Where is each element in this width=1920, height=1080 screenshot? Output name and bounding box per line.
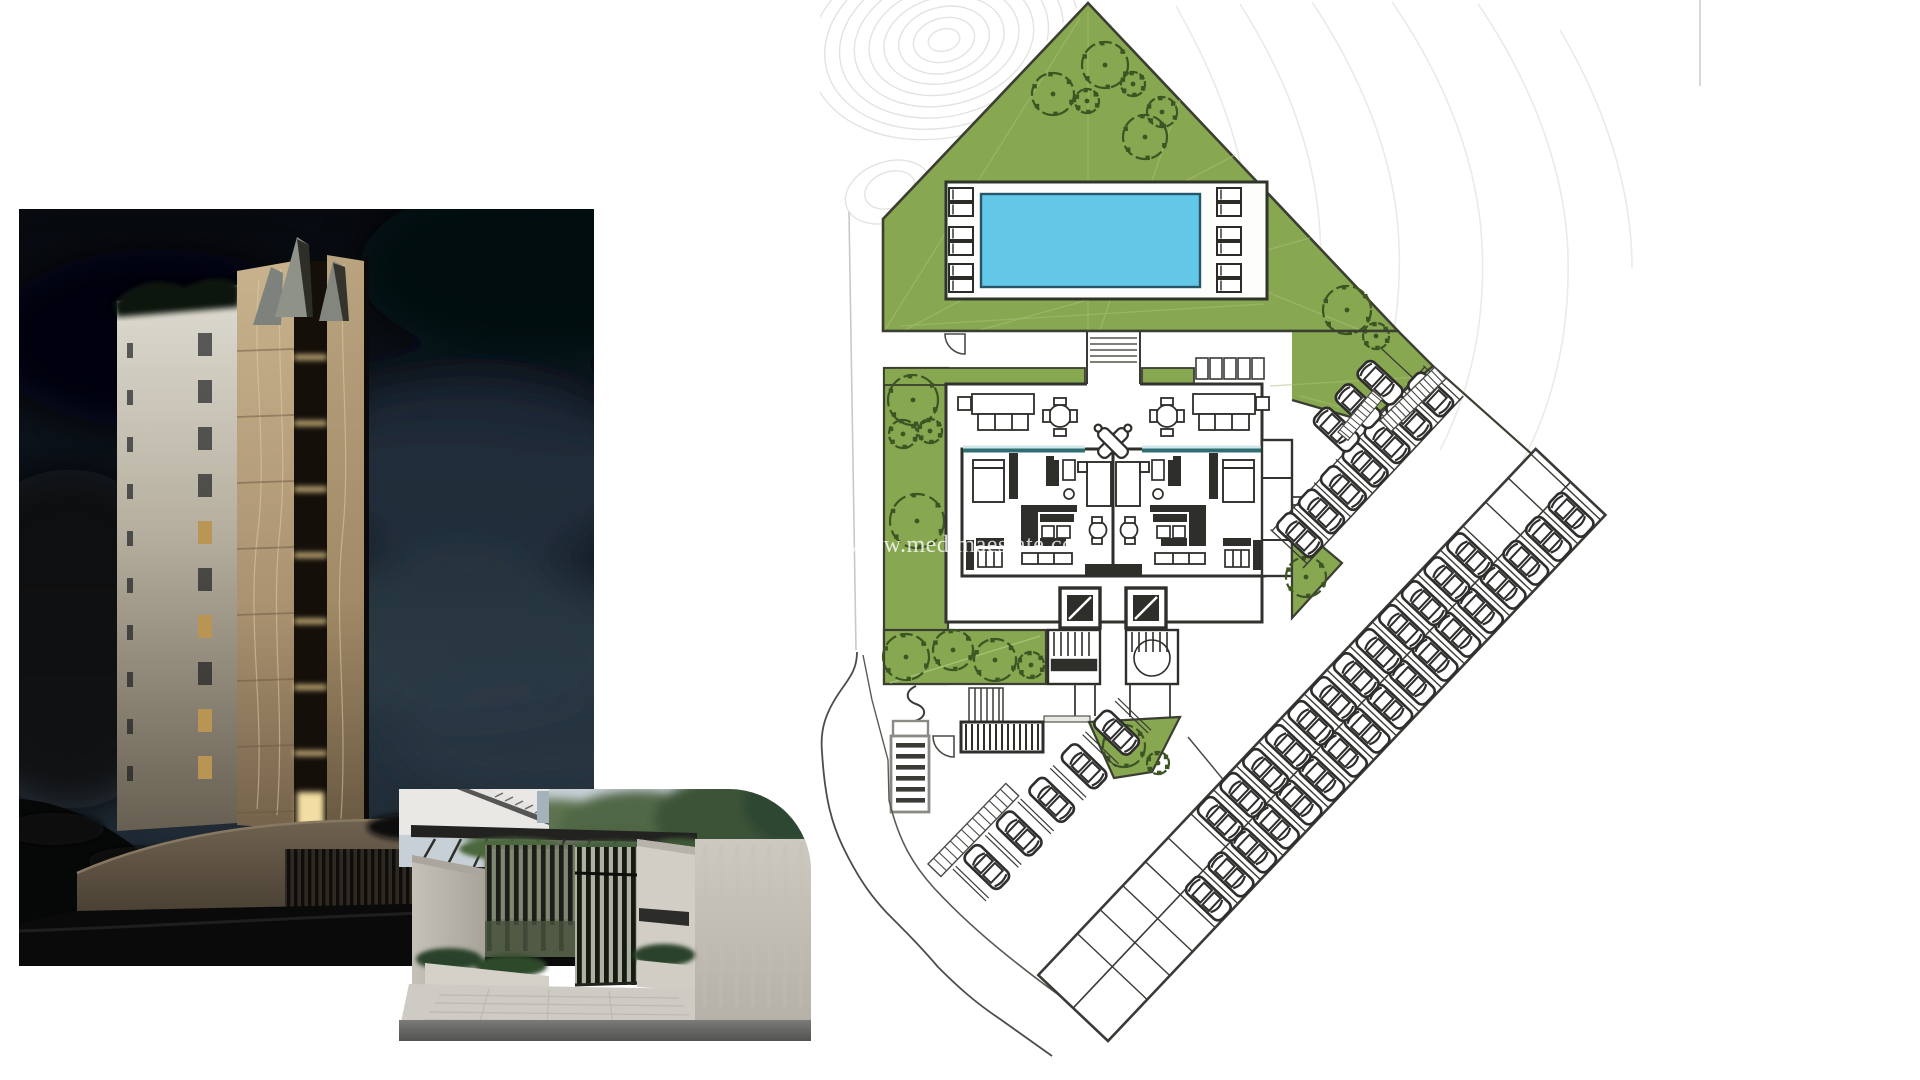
svg-text:www.medimaestate.com: www.medimaestate.com	[848, 532, 1094, 558]
